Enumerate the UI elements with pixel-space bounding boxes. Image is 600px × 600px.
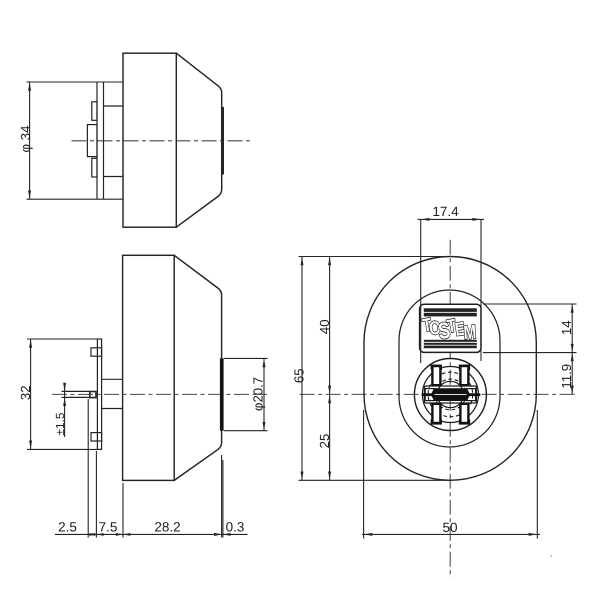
svg-text:25: 25 [317, 434, 332, 449]
svg-text:7.5: 7.5 [99, 520, 118, 535]
svg-text:±1.5: ±1.5 [53, 412, 67, 435]
svg-text:φ20.7: φ20.7 [250, 377, 265, 411]
svg-text:11.9: 11.9 [559, 364, 574, 389]
svg-text:50: 50 [442, 520, 457, 535]
svg-text:14: 14 [559, 320, 574, 335]
svg-text:2.5: 2.5 [58, 520, 77, 535]
svg-text:φ 34: φ 34 [18, 126, 33, 153]
svg-text:28.2: 28.2 [154, 520, 180, 535]
svg-text:0.3: 0.3 [226, 520, 245, 535]
svg-text:32: 32 [18, 385, 33, 400]
svg-text:M: M [463, 321, 477, 344]
svg-text:17.4: 17.4 [432, 204, 459, 219]
svg-text:40: 40 [317, 319, 332, 334]
svg-text:65: 65 [292, 368, 307, 383]
